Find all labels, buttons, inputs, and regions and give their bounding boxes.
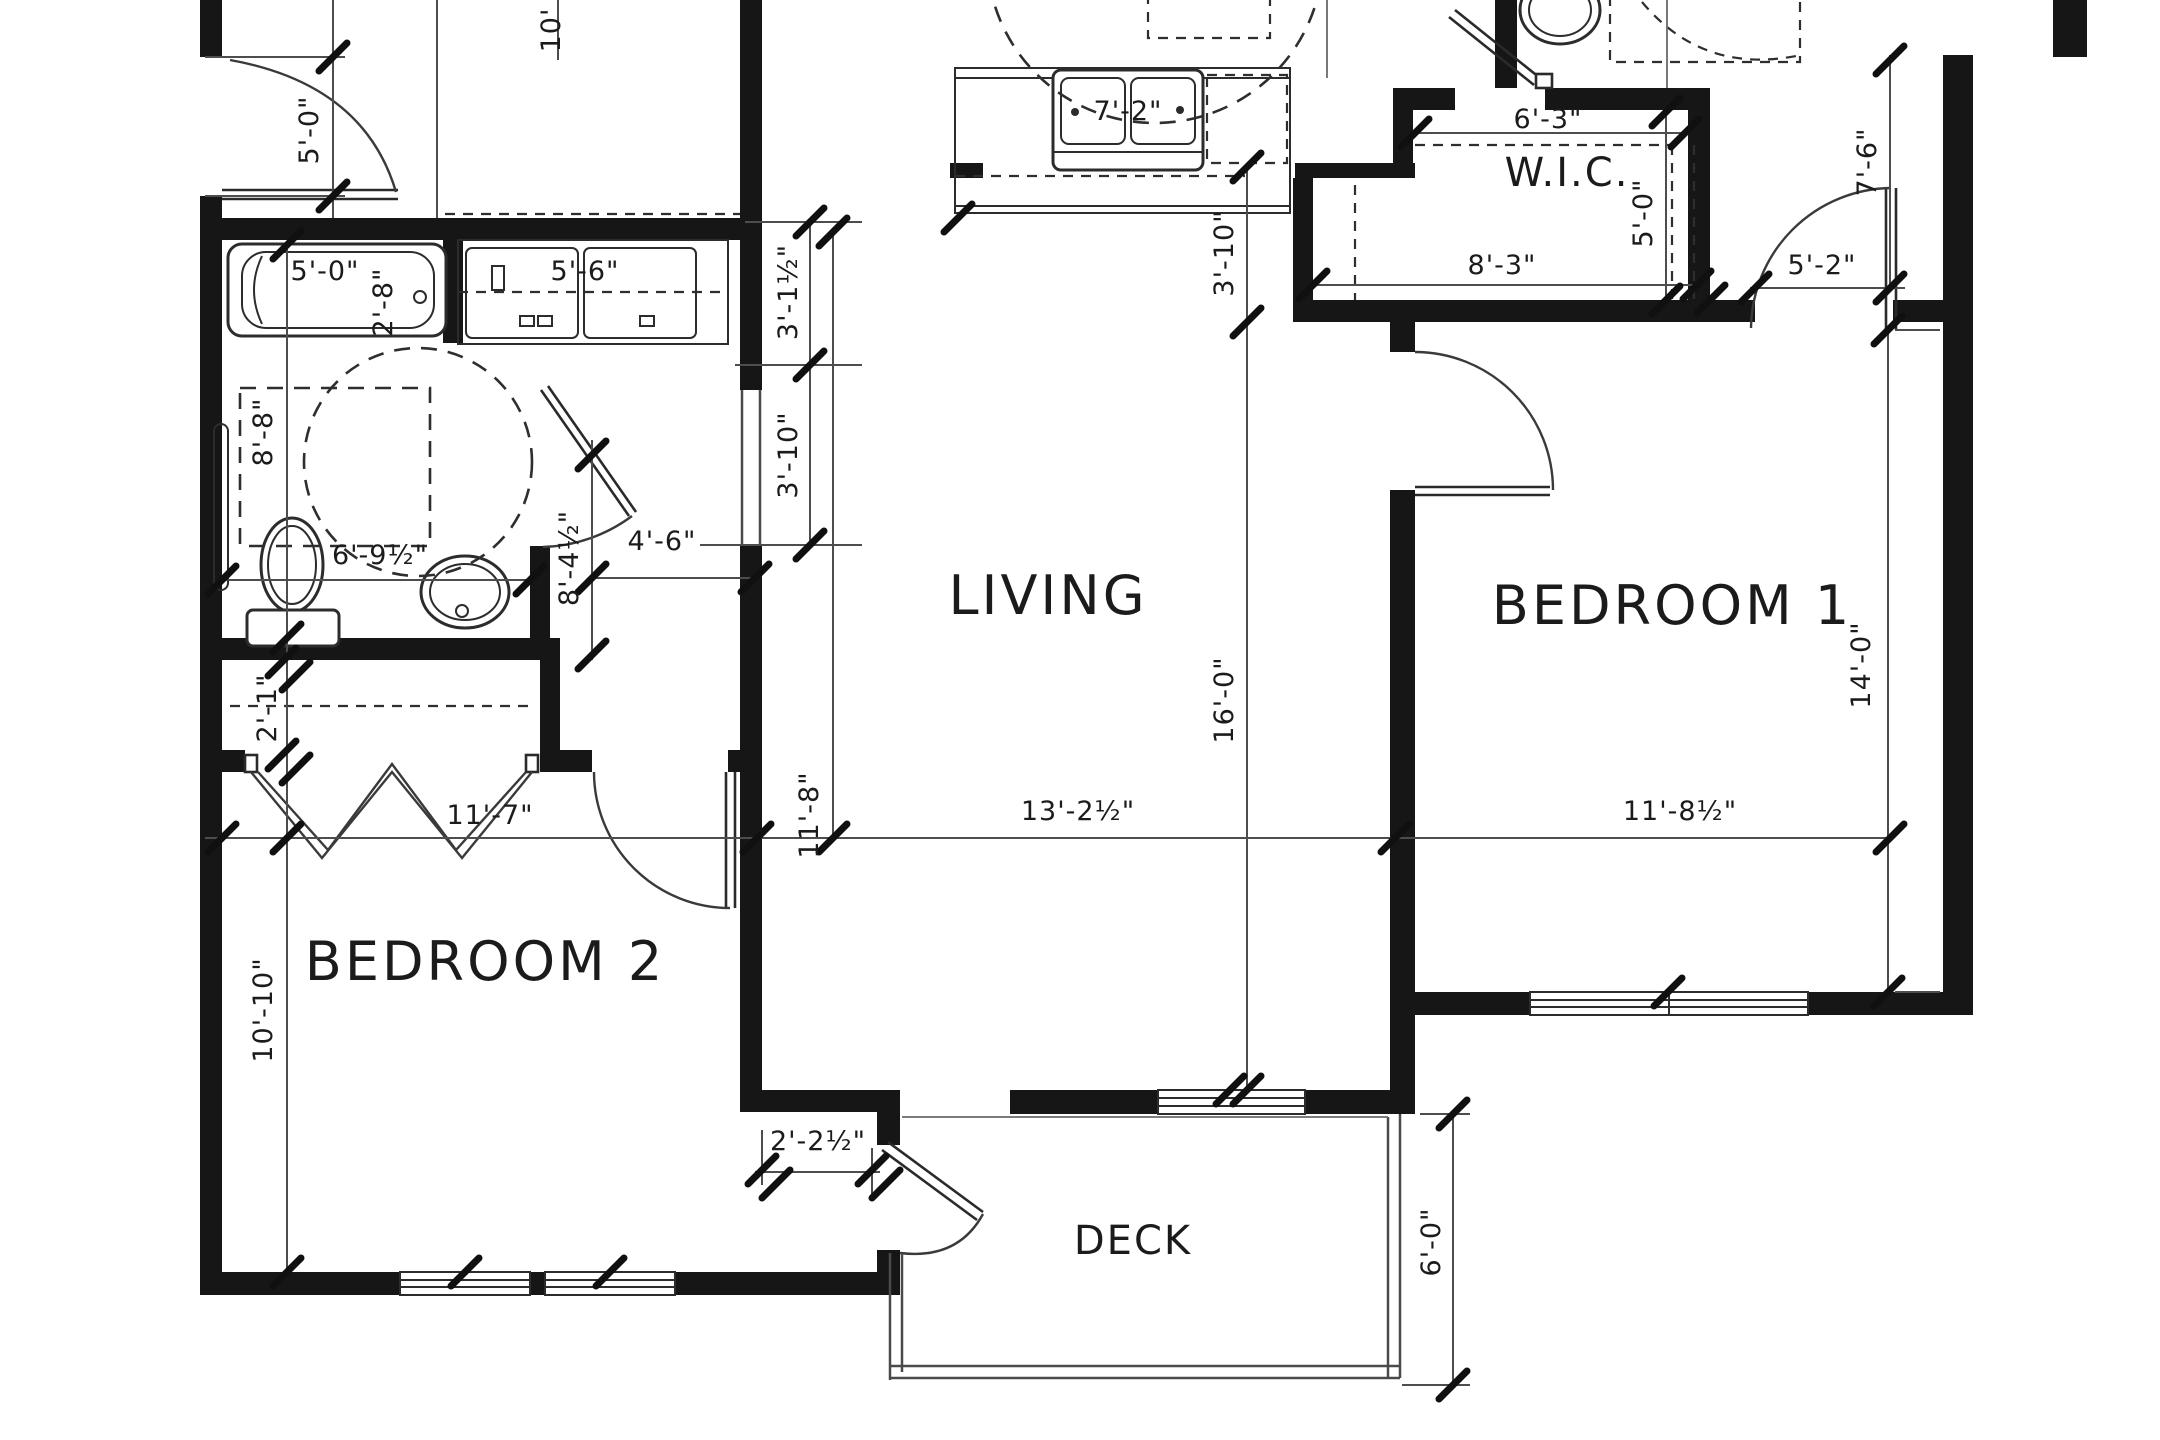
dim-tub-width: 2'-8" (368, 268, 399, 337)
dim-bed1-door: 5'-2" (1788, 250, 1857, 281)
dim-entry-door: 5'-0" (294, 96, 325, 165)
dim-bedroom1-width: 11'-8½" (1623, 796, 1737, 827)
dim-wic-lower: 8'-3" (1468, 250, 1537, 281)
dim-tub-length: 5'-0" (291, 256, 360, 287)
room-label-living: LIVING (948, 564, 1147, 627)
dim-closet-depth: 2'-1" (252, 674, 283, 743)
shower-icon (1610, 0, 1800, 62)
dim-top-partial: 10' (536, 8, 567, 53)
dim-step: 2'-2½" (770, 1126, 866, 1157)
dim-hall-width: 4'-6" (628, 526, 697, 557)
dim-seg-3-1: 3'-1½" (773, 244, 804, 340)
dim-wic-depth: 5'-0" (1628, 179, 1659, 248)
deck-door-swing-icon (882, 1142, 983, 1254)
dim-kitchen-sink: 7'-2" (1094, 96, 1163, 127)
sink-icon (421, 556, 509, 628)
dim-wic-width: 6'-3" (1514, 104, 1583, 135)
walls-layer (200, 0, 2087, 1295)
room-label-bedroom1: BEDROOM 1 (1492, 574, 1852, 637)
dim-bath-wall: 8'-4½" (554, 510, 585, 606)
dim-living-width: 13'-2½" (1021, 796, 1135, 827)
dishwasher-icon (1207, 75, 1287, 163)
toilet-upper-icon (1520, 0, 1600, 44)
dim-bath-length: 8'-8" (248, 398, 279, 467)
dim-living-height: 16'-0" (1209, 656, 1240, 743)
dim-hall-right: 7'-6" (1852, 128, 1883, 197)
dim-bedroom2-width: 11'-7" (446, 800, 533, 831)
floor-plan-page: LIVING BEDROOM 1 BEDROOM 2 W.I.C. DECK 5… (0, 0, 2160, 1440)
toilet-icon (247, 518, 339, 646)
dim-deck-depth: 6'-0" (1416, 1208, 1447, 1277)
dim-hall-height: 11'-8" (794, 771, 825, 858)
dimensions-layer (205, 0, 1940, 1399)
dim-bedroom1-height: 14'-0" (1846, 621, 1877, 708)
dim-seg-3-10: 3'-10" (773, 411, 804, 498)
room-label-wic: W.I.C. (1505, 150, 1630, 196)
dim-bath-width: 6'-9½" (332, 540, 428, 571)
dim-bedroom2-height: 10'-10" (248, 957, 279, 1062)
dim-kitchen-side: 3'-10" (1209, 209, 1240, 296)
floor-plan-canvas: LIVING BEDROOM 1 BEDROOM 2 W.I.C. DECK 5… (0, 0, 2160, 1440)
windows-layer (400, 390, 1808, 1295)
room-label-bedroom2: BEDROOM 2 (305, 930, 665, 993)
bedroom2-door-swing-icon (594, 772, 735, 908)
bedroom1-entry-swing-icon (1415, 352, 1553, 495)
room-label-deck: DECK (1074, 1218, 1192, 1264)
dim-laundry-width: 5'-6" (551, 256, 620, 287)
